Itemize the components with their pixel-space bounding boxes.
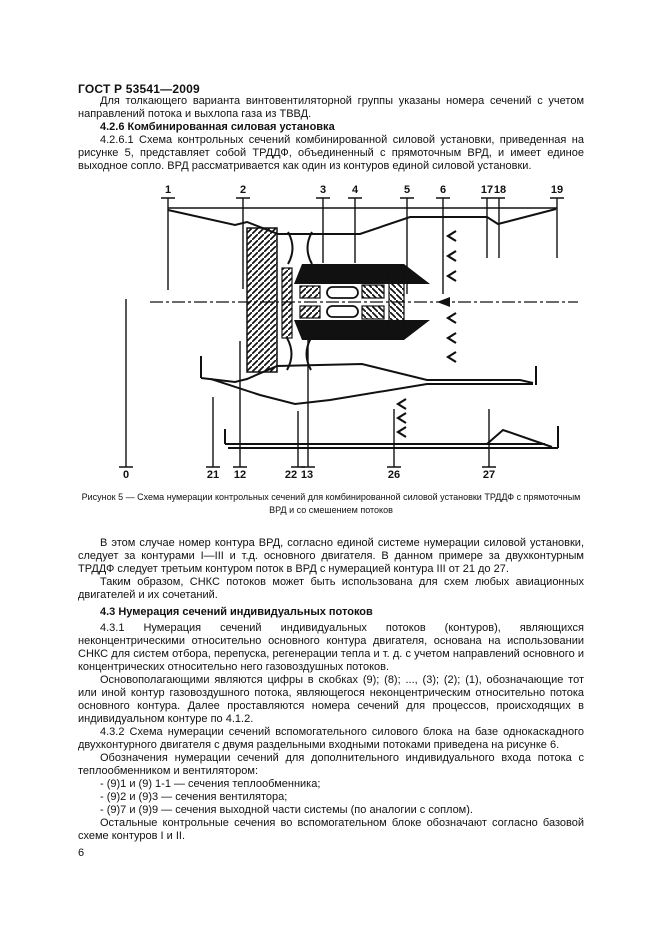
bottom-section-lines xyxy=(119,299,496,467)
page-number: 6 xyxy=(78,847,84,859)
section-label-bottom: 13 xyxy=(301,470,313,481)
engine-centerline xyxy=(150,297,578,307)
paragraph-4-3-1: 4.3.1 Нумерация сечений индивидуальных п… xyxy=(78,622,584,674)
paragraph-4-3-2: 4.3.2 Схема нумерации сечений вспомогате… xyxy=(78,726,584,752)
list-item-heat-exchanger: - (9)1 и (9) 1-1 — сечения теплообменник… xyxy=(78,778,584,791)
heading-4-2-6: 4.2.6 Комбинированная силовая установка xyxy=(78,121,584,134)
section-label-bottom: 0 xyxy=(123,470,129,481)
section-label-top: 6 xyxy=(440,185,446,196)
section-label-top: 2 xyxy=(240,185,246,196)
duct-throat-arcs xyxy=(287,232,312,370)
list-item-exit: - (9)7 и (9)9 — сечения выходной части с… xyxy=(78,804,584,817)
core-components xyxy=(300,271,404,333)
section-label-top: 5 xyxy=(404,185,410,196)
figure5-diagram xyxy=(0,0,661,520)
nacelle-bottom-contour xyxy=(201,356,536,404)
section-label-bottom: 26 xyxy=(388,470,400,481)
paragraph-case: В этом случае номер контура ВРД, согласн… xyxy=(78,537,584,576)
page-header: ГОСТ Р 53541—2009 xyxy=(78,82,200,96)
section-label-top: 19 xyxy=(551,185,563,196)
flow-chevrons xyxy=(398,231,456,437)
document-page: ГОСТ Р 53541—2009 Для толкающего вариант… xyxy=(0,0,661,936)
core-casing xyxy=(294,264,430,340)
paragraph-fundamental: Основополагающими являются цифры в скобк… xyxy=(78,674,584,726)
top-section-lines xyxy=(161,198,564,294)
ramjet-duct xyxy=(225,426,558,448)
section-label-bottom: 21 xyxy=(207,470,219,481)
paragraph-rest: Остальные контрольные сечения во вспомог… xyxy=(78,817,584,843)
list-item-fan: - (9)2 и (9)3 — сечения вентилятора; xyxy=(78,791,584,804)
section-label-top: 4 xyxy=(352,185,358,196)
section-label-bottom: 12 xyxy=(234,470,246,481)
paragraph-denotations: Обозначения нумерации сечений для дополн… xyxy=(78,752,584,778)
section-label-bottom: 22 xyxy=(285,470,297,481)
heading-4-3: 4.3 Нумерация сечений индивидуальных пот… xyxy=(78,606,584,619)
paragraph-4-2-6-1: 4.2.6.1 Схема контрольных сечений комбин… xyxy=(78,134,584,173)
section-label-top: 18 xyxy=(494,185,506,196)
paragraph-thus: Таким образом, СНКС потоков может быть и… xyxy=(78,576,584,602)
nacelle-top-contour xyxy=(168,209,556,234)
text-block-upper: Для толкающего варианта винтовентиляторн… xyxy=(78,95,584,173)
section-label-top: 1 xyxy=(165,185,171,196)
text-block-lower: В этом случае номер контура ВРД, согласн… xyxy=(78,537,584,843)
figure5-caption: Рисунок 5 — Схема нумерации контрольных … xyxy=(78,491,584,517)
fan-and-booster xyxy=(247,228,292,372)
section-label-top: 3 xyxy=(320,185,326,196)
paragraph-intro: Для толкающего варианта винтовентиляторн… xyxy=(78,95,584,121)
section-label-bottom: 27 xyxy=(483,470,495,481)
section-label-top: 17 xyxy=(481,185,493,196)
